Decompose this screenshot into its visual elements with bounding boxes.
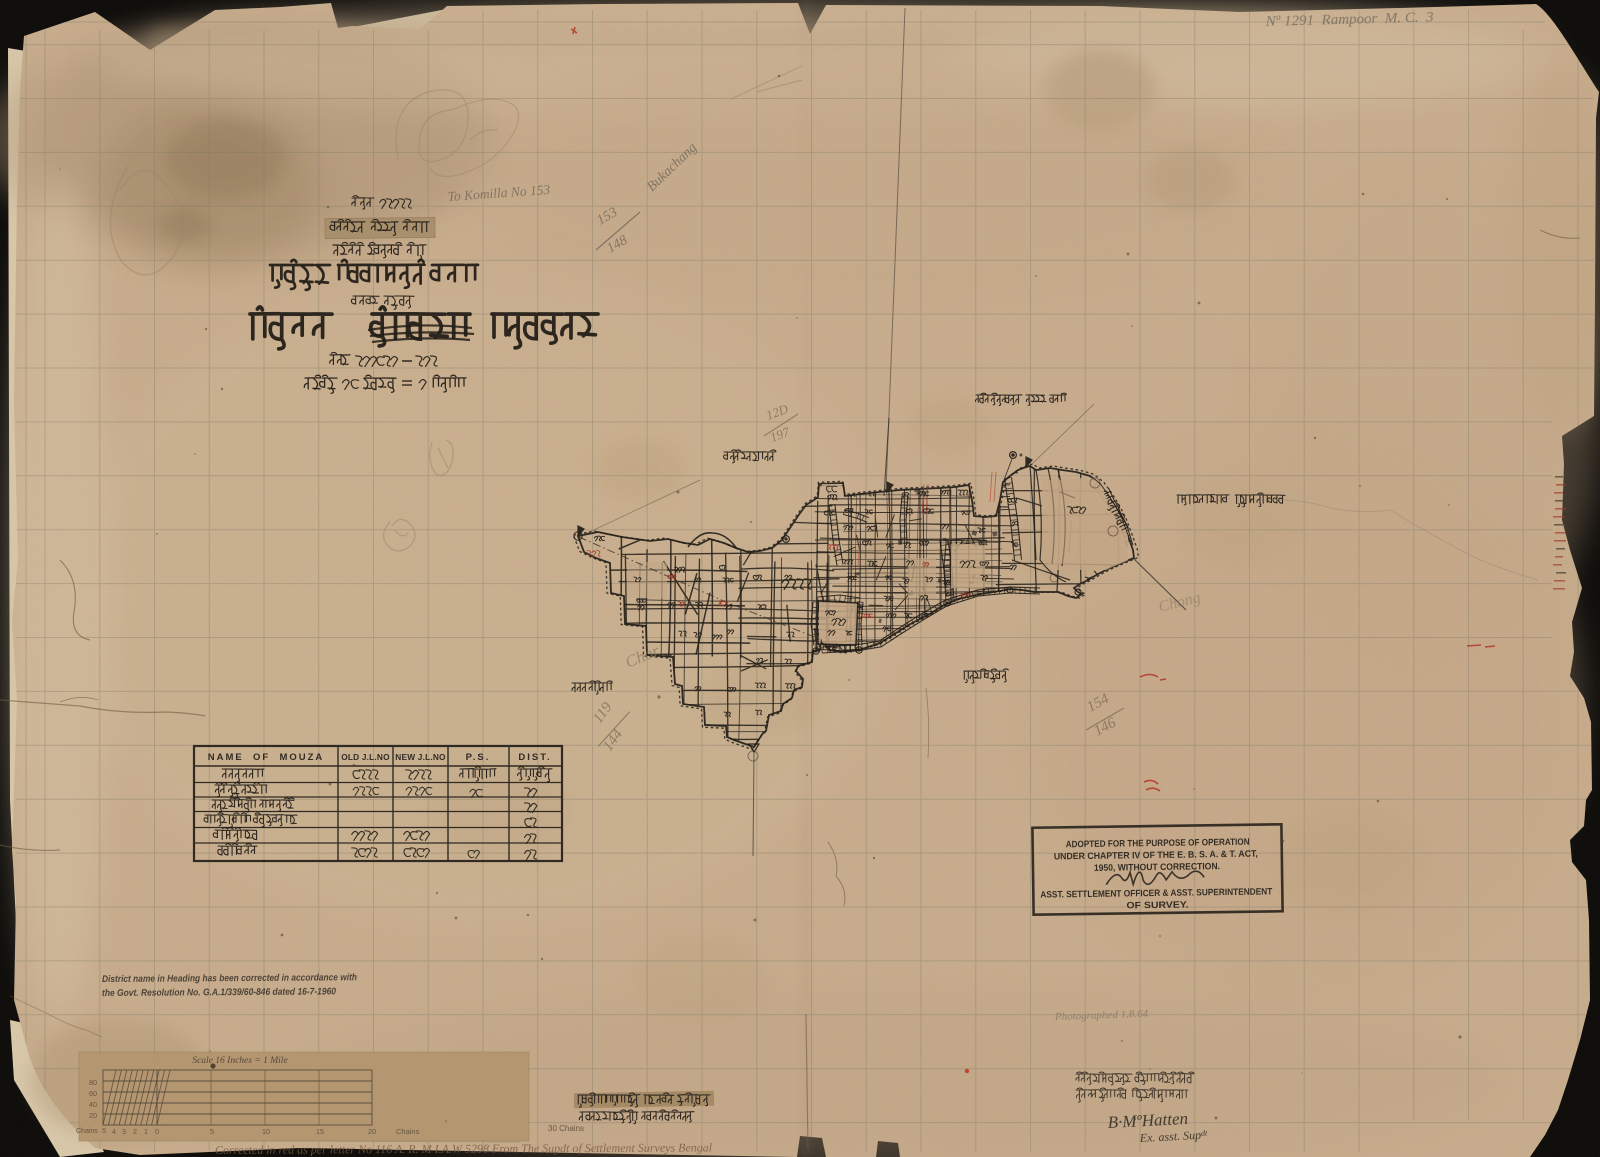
svg-text:1: 1 [144, 1127, 148, 1136]
svg-text:Corrected in red as per lette: Corrected in red as per letter No 116 A.… [215, 1140, 713, 1157]
svg-text:5: 5 [210, 1127, 214, 1136]
svg-text:the Govt. Resolution No. G.A.1: the Govt. Resolution No. G.A.1/339/60-84… [102, 986, 337, 999]
svg-text:80: 80 [89, 1078, 97, 1087]
svg-text:0: 0 [155, 1127, 159, 1136]
svg-text:15: 15 [316, 1127, 324, 1136]
svg-text:Chains: Chains [396, 1127, 420, 1136]
svg-text:20: 20 [89, 1111, 97, 1120]
svg-text:Scale 16 Inches = 1 Mile: Scale 16 Inches = 1 Mile [192, 1056, 287, 1066]
svg-text:2: 2 [133, 1127, 137, 1136]
svg-text:40: 40 [89, 1100, 97, 1109]
svg-text:10: 10 [262, 1127, 270, 1136]
svg-text:P.S.: P.S. [466, 752, 491, 763]
svg-text:OF SURVEY.: OF SURVEY. [1126, 900, 1188, 911]
svg-text:30 Chains: 30 Chains [548, 1124, 584, 1133]
svg-text:NAME OF MOUZA: NAME OF MOUZA [208, 752, 325, 763]
svg-text:NEW J.L.NO: NEW J.L.NO [395, 752, 446, 762]
svg-text:DIST.: DIST. [518, 752, 551, 763]
svg-text:District name in Heading has b: District name in Heading has been correc… [102, 972, 357, 985]
svg-text:OLD J.L.NO: OLD J.L.NO [341, 752, 390, 762]
svg-text:3: 3 [122, 1127, 126, 1136]
svg-text:5: 5 [102, 1126, 106, 1135]
svg-text:4: 4 [112, 1127, 116, 1136]
svg-text:1950, WITHOUT CORRECTION.: 1950, WITHOUT CORRECTION. [1094, 861, 1220, 873]
svg-text:Chains: Chains [76, 1128, 98, 1135]
svg-text:20: 20 [368, 1127, 376, 1136]
svg-text:60: 60 [89, 1089, 97, 1098]
